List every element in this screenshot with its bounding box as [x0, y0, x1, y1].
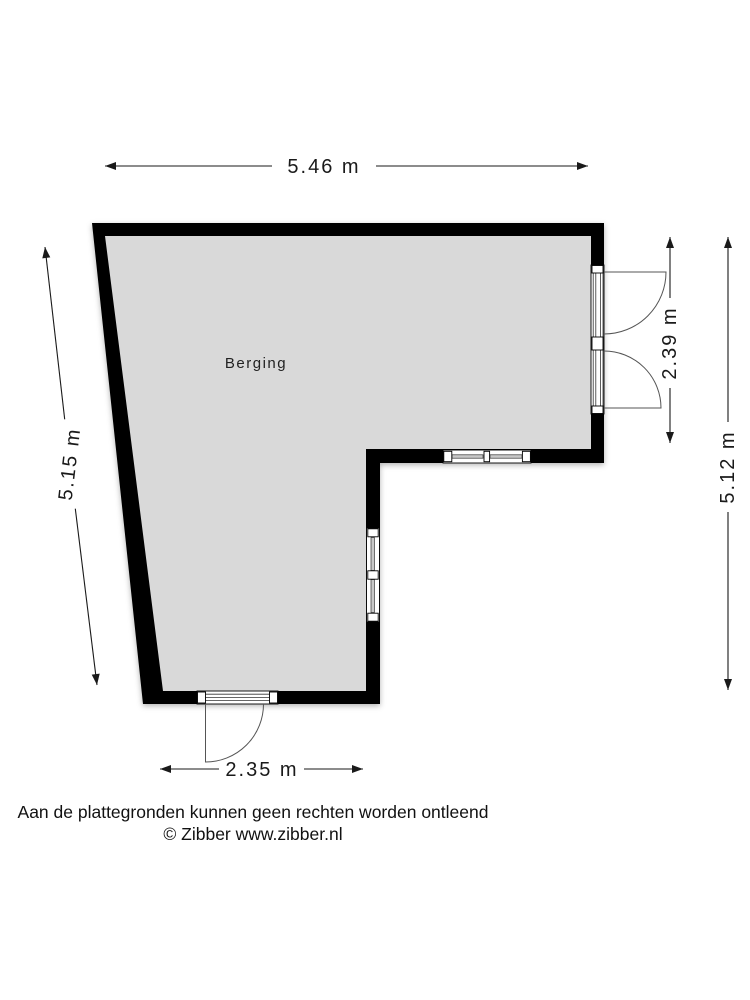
window-inner-horizontal	[443, 450, 531, 463]
door-jamb	[270, 692, 278, 703]
dimension-top: 5.46 m	[105, 156, 588, 178]
footer-credit: © Zibber www.zibber.nl	[0, 823, 506, 845]
footer-disclaimer: Aan de plattegronden kunnen geen rechten…	[0, 801, 506, 823]
dimension-label: 2.35 m	[225, 759, 298, 781]
dimension-line	[45, 247, 65, 419]
window-jamb	[444, 451, 452, 461]
arrowhead-down	[92, 674, 100, 685]
dimension-label: 5.46 m	[287, 156, 360, 178]
arrowhead-right	[577, 162, 588, 170]
dimension-bottom: 2.35 m	[160, 759, 363, 781]
door-leaf-swing-arc	[604, 272, 666, 334]
window-jamb	[368, 613, 378, 621]
window-glass	[452, 455, 483, 458]
door-leaf-swing-arc	[206, 704, 264, 762]
dimension-right-outer: 5.12 m	[717, 237, 739, 690]
arrowhead-up	[724, 237, 732, 248]
window-inner-vertical	[367, 528, 380, 622]
arrowhead-down	[724, 679, 732, 690]
arrowhead-up	[666, 237, 674, 248]
door-mullion	[592, 337, 603, 350]
floor-plan: Berging 5.46 m 5.15 m 2.39 m 5.12 m	[0, 0, 750, 1000]
entry-door-bottom	[197, 691, 278, 762]
page: { "plan": { "room_label": "Berging", "co…	[0, 0, 750, 1000]
door-jamb	[592, 266, 603, 274]
footer: Aan de plattegronden kunnen geen rechten…	[0, 801, 506, 845]
dimension-label: 5.12 m	[717, 430, 739, 503]
window-jamb	[368, 529, 378, 537]
double-door-right	[591, 265, 666, 414]
dimension-label: 2.39 m	[659, 306, 681, 379]
dimension-label: 5.15 m	[55, 426, 86, 501]
door-jamb	[592, 406, 603, 414]
window-mullion	[368, 571, 378, 579]
window-glass	[371, 538, 374, 571]
room-label: Berging	[225, 355, 287, 372]
dimension-left: 5.15 m	[42, 247, 99, 685]
door-leaf-swing-arc	[604, 351, 661, 408]
arrowhead-up	[42, 247, 50, 258]
arrowhead-down	[666, 432, 674, 443]
window-jamb	[522, 451, 530, 461]
dimension-line	[75, 509, 97, 685]
window-glass	[371, 580, 374, 613]
arrowhead-left	[105, 162, 116, 170]
door-jamb	[198, 692, 206, 703]
window-mullion	[484, 451, 490, 461]
arrowhead-left	[160, 765, 171, 773]
dimension-right-inner: 2.39 m	[659, 237, 681, 443]
window-glass	[490, 455, 522, 458]
room-floor	[105, 236, 591, 691]
building	[92, 223, 604, 704]
arrowhead-right	[352, 765, 363, 773]
